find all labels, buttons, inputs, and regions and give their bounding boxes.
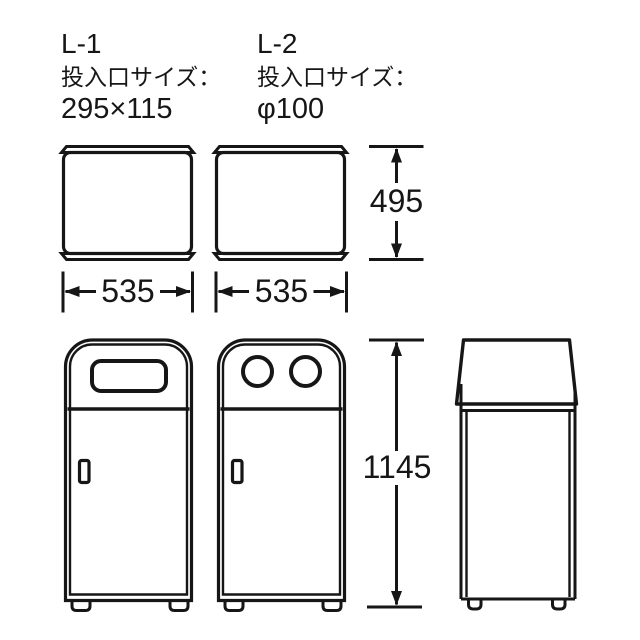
l2-door-handle — [233, 461, 243, 483]
arrow-up-icon — [391, 148, 402, 163]
l1-slot-opening — [92, 361, 166, 391]
l1-opening-size-label: 投入口サイズ： — [61, 64, 221, 90]
l2-width-dimension: 535 — [216, 272, 347, 313]
l1-front-view — [66, 340, 192, 611]
l2-opening-size-value: φ100 — [257, 93, 324, 125]
l1-outer-body — [66, 340, 192, 601]
l2-round-opening-right — [291, 357, 320, 386]
arrow-left-icon — [65, 286, 80, 297]
side-hood — [457, 340, 577, 404]
side-right-foot — [553, 601, 566, 610]
l2-outer-body — [219, 340, 345, 601]
spec-diagram: L-1 投入口サイズ： 295×115 L-2 投入口サイズ： φ100 495 — [0, 0, 640, 640]
l2-round-opening-left — [243, 357, 272, 386]
l2-top-view-bottom-rim — [215, 254, 347, 260]
l2-width-dimension-value: 535 — [255, 273, 308, 309]
side-left-foot — [469, 601, 482, 610]
overall-height-dimension-value: 1145 — [363, 449, 432, 485]
arrow-right-icon — [330, 286, 345, 297]
diagram-canvas: L-1 投入口サイズ： 295×115 L-2 投入口サイズ： φ100 495 — [0, 0, 640, 640]
arrow-down-icon — [391, 591, 402, 606]
l2-front-view — [219, 340, 345, 611]
l1-model-label: L-1 — [61, 28, 101, 59]
overall-height-dimension: 1145 — [363, 340, 432, 607]
arrow-left-icon — [218, 286, 233, 297]
l1-opening-size-value: 295×115 — [61, 93, 173, 125]
l2-model-label: L-2 — [257, 28, 297, 59]
l1-top-view-body — [64, 153, 192, 254]
body-height-dimension-value: 495 — [370, 183, 423, 219]
l2-opening-size-label: 投入口サイズ： — [257, 64, 417, 90]
l1-width-dimension: 535 — [63, 272, 193, 313]
l1-top-view-bottom-rim — [62, 254, 194, 260]
l2-top-view-body — [217, 153, 345, 254]
l1-top-view — [62, 147, 194, 260]
l1-width-dimension-value: 535 — [101, 273, 154, 309]
arrow-up-icon — [391, 342, 402, 357]
l2-top-view — [215, 147, 347, 260]
side-view — [457, 340, 577, 609]
arrow-right-icon — [176, 286, 191, 297]
body-height-dimension: 495 — [369, 147, 424, 260]
arrow-down-icon — [391, 244, 402, 259]
l1-door-handle — [80, 461, 90, 483]
